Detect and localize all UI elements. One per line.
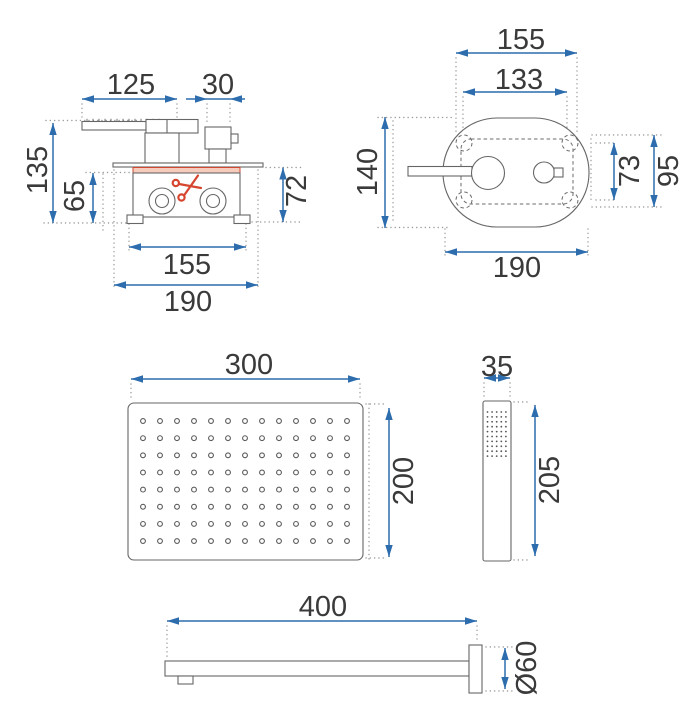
nozzle-hole bbox=[487, 431, 489, 433]
nozzle-hole bbox=[277, 470, 282, 475]
nozzle-hole bbox=[496, 411, 498, 413]
nozzle-hole bbox=[487, 436, 489, 438]
nozzle-hole bbox=[505, 431, 507, 433]
dim-label-190: 190 bbox=[164, 286, 212, 318]
nozzle-hole bbox=[328, 539, 333, 544]
nozzle-hole bbox=[209, 504, 214, 509]
nozzle-hole bbox=[243, 487, 248, 492]
nozzle-hole bbox=[226, 522, 231, 527]
nozzle-hole bbox=[311, 504, 316, 509]
nozzle-hole bbox=[500, 436, 502, 438]
nozzle-hole bbox=[226, 487, 231, 492]
nozzle-hole bbox=[496, 441, 498, 443]
nozzle-hole bbox=[345, 436, 350, 441]
nozzle-hole bbox=[294, 522, 299, 527]
nozzle-hole bbox=[226, 419, 231, 424]
nozzle-hole bbox=[175, 522, 180, 527]
nozzle-hole bbox=[500, 450, 502, 452]
nozzle-hole bbox=[158, 504, 163, 509]
temperature-knob bbox=[205, 127, 231, 149]
nozzle-hole bbox=[277, 504, 282, 509]
nozzle-hole bbox=[496, 436, 498, 438]
mixer-knob-small bbox=[534, 162, 555, 183]
nozzle-hole bbox=[328, 436, 333, 441]
nozzle-hole bbox=[243, 453, 248, 458]
nozzle-hole bbox=[209, 487, 214, 492]
nozzle-hole bbox=[500, 411, 502, 413]
nozzle-hole bbox=[192, 539, 197, 544]
nozzle-hole bbox=[496, 416, 498, 418]
nozzle-hole bbox=[491, 416, 493, 418]
nozzle-hole bbox=[491, 431, 493, 433]
nozzle-hole bbox=[505, 455, 507, 457]
nozzle-hole bbox=[496, 421, 498, 423]
nozzle-hole bbox=[294, 436, 299, 441]
nozzle-hole bbox=[496, 426, 498, 428]
nozzle-hole bbox=[294, 453, 299, 458]
nozzle-hole bbox=[345, 487, 350, 492]
dim-label-200: 200 bbox=[388, 457, 420, 505]
nozzle-hole bbox=[500, 445, 502, 447]
nozzle-hole bbox=[209, 539, 214, 544]
nozzle-hole bbox=[328, 522, 333, 527]
nozzle-hole bbox=[496, 445, 498, 447]
nozzle-hole bbox=[158, 539, 163, 544]
nozzle-hole bbox=[345, 504, 350, 509]
nozzle-hole bbox=[260, 453, 265, 458]
nozzle-hole bbox=[158, 487, 163, 492]
nozzle-hole bbox=[345, 522, 350, 527]
nozzle-hole bbox=[491, 411, 493, 413]
lever-handle-base bbox=[146, 120, 198, 134]
nozzle-hole bbox=[158, 419, 163, 424]
nozzle-hole bbox=[311, 487, 316, 492]
wall-plate bbox=[113, 163, 263, 167]
nozzle-hole bbox=[487, 426, 489, 428]
nozzle-hole bbox=[487, 441, 489, 443]
nozzle-hole bbox=[175, 436, 180, 441]
nozzle-hole bbox=[496, 431, 498, 433]
dim-label-133: 133 bbox=[495, 64, 543, 96]
nozzle-hole bbox=[487, 450, 489, 452]
hand-shower-view: 35 205 bbox=[481, 351, 566, 561]
nozzle-hole bbox=[491, 441, 493, 443]
nozzle-hole bbox=[505, 436, 507, 438]
nozzle-hole bbox=[141, 539, 146, 544]
nozzle-hole bbox=[277, 522, 282, 527]
nozzle-hole bbox=[260, 470, 265, 475]
nozzle-hole bbox=[175, 504, 180, 509]
nozzle-hole bbox=[328, 419, 333, 424]
dim-label-300: 300 bbox=[225, 349, 273, 381]
nozzle-hole bbox=[311, 539, 316, 544]
nozzle-hole bbox=[328, 487, 333, 492]
nozzle-hole bbox=[175, 470, 180, 475]
nozzle-hole bbox=[487, 416, 489, 418]
nozzle-hole bbox=[209, 522, 214, 527]
nozzle-hole bbox=[226, 436, 231, 441]
nozzle-hole bbox=[260, 504, 265, 509]
nozzle-hole bbox=[243, 419, 248, 424]
nozzle-hole bbox=[345, 453, 350, 458]
dim-label-125: 125 bbox=[107, 69, 155, 101]
nozzle-hole bbox=[277, 419, 282, 424]
nozzle-hole bbox=[487, 445, 489, 447]
arm-outlet-nub bbox=[178, 676, 193, 684]
nozzle-hole bbox=[294, 470, 299, 475]
nozzle-hole bbox=[158, 470, 163, 475]
nozzle-hole bbox=[260, 436, 265, 441]
nozzle-hole bbox=[294, 539, 299, 544]
shower-head-plate bbox=[128, 403, 363, 560]
nozzle-hole bbox=[311, 522, 316, 527]
nozzle-hole bbox=[277, 436, 282, 441]
hand-shower-body bbox=[483, 401, 511, 561]
nozzle-hole bbox=[328, 504, 333, 509]
nozzle-hole bbox=[209, 436, 214, 441]
nozzle-hole bbox=[226, 470, 231, 475]
shower-head-view: 300 200 bbox=[128, 349, 420, 560]
nozzle-hole bbox=[192, 487, 197, 492]
nozzle-hole bbox=[487, 455, 489, 457]
temperature-knob-nub bbox=[231, 134, 238, 143]
nozzle-hole bbox=[491, 426, 493, 428]
nozzle-hole bbox=[294, 504, 299, 509]
nozzle-hole bbox=[505, 411, 507, 413]
nozzle-hole bbox=[496, 450, 498, 452]
box-foot-left bbox=[127, 215, 143, 224]
dim-label-205: 205 bbox=[534, 456, 566, 504]
nozzle-hole bbox=[243, 539, 248, 544]
nozzle-hole bbox=[491, 436, 493, 438]
technical-drawing-canvas: 125 30 135 65 72 155 190 bbox=[0, 0, 700, 706]
nozzle-hole bbox=[277, 539, 282, 544]
lever-handle-side bbox=[408, 167, 472, 177]
nozzle-hole bbox=[491, 421, 493, 423]
nozzle-hole bbox=[226, 453, 231, 458]
nozzle-hole bbox=[487, 411, 489, 413]
shower-arm-view: 400 Ø60 bbox=[165, 591, 543, 695]
nozzle-hole bbox=[491, 450, 493, 452]
nozzle-hole bbox=[345, 470, 350, 475]
dim-label-140: 140 bbox=[352, 148, 384, 196]
nozzle-hole bbox=[243, 504, 248, 509]
nozzle-hole bbox=[141, 487, 146, 492]
nozzle-hole bbox=[141, 470, 146, 475]
nozzle-hole bbox=[192, 504, 197, 509]
nozzle-hole bbox=[192, 453, 197, 458]
nozzle-hole bbox=[294, 419, 299, 424]
extension-lines bbox=[167, 626, 513, 691]
dim-label-diameter: Ø60 bbox=[511, 641, 543, 696]
dim-label-400: 400 bbox=[299, 591, 347, 623]
dim-label-155: 155 bbox=[163, 249, 211, 281]
nozzle-hole bbox=[141, 436, 146, 441]
nozzle-hole bbox=[192, 419, 197, 424]
nozzle-hole bbox=[192, 522, 197, 527]
nozzle-hole bbox=[243, 436, 248, 441]
nozzle-hole bbox=[345, 539, 350, 544]
nozzle-hole bbox=[500, 441, 502, 443]
nozzle-hole bbox=[500, 421, 502, 423]
nozzle-hole bbox=[487, 421, 489, 423]
nozzle-hole bbox=[328, 453, 333, 458]
nozzle-hole bbox=[158, 453, 163, 458]
nozzle-hole bbox=[209, 470, 214, 475]
nozzle-hole bbox=[505, 421, 507, 423]
nozzle-hole bbox=[243, 470, 248, 475]
nozzle-hole bbox=[175, 539, 180, 544]
dim-label-95: 95 bbox=[653, 155, 685, 187]
nozzle-hole bbox=[500, 426, 502, 428]
nozzle-hole bbox=[328, 470, 333, 475]
arm-wall-flange bbox=[469, 645, 482, 693]
nozzle-hole bbox=[277, 453, 282, 458]
nozzle-hole bbox=[345, 419, 350, 424]
dim-label-30: 30 bbox=[202, 69, 234, 101]
nozzle-hole bbox=[209, 453, 214, 458]
nozzle-hole bbox=[491, 455, 493, 457]
nozzle-hole bbox=[260, 487, 265, 492]
knob-small-nub bbox=[554, 168, 563, 177]
lever-handle-bar bbox=[82, 122, 146, 131]
nozzle-hole bbox=[500, 416, 502, 418]
nozzle-hole bbox=[505, 445, 507, 447]
nozzle-hole bbox=[505, 426, 507, 428]
nozzle-hole bbox=[243, 522, 248, 527]
temperature-knob-stem bbox=[209, 149, 226, 163]
nozzle-hole bbox=[311, 453, 316, 458]
nozzle-hole bbox=[141, 522, 146, 527]
mixer-face-view: 155 133 140 73 95 190 bbox=[352, 24, 685, 284]
nozzle-hole bbox=[158, 436, 163, 441]
dim-label-73: 73 bbox=[614, 155, 646, 187]
nozzle-hole bbox=[505, 450, 507, 452]
nozzle-hole bbox=[175, 453, 180, 458]
dim-label-72: 72 bbox=[281, 175, 313, 207]
nozzle-hole bbox=[175, 487, 180, 492]
dim-label-65: 65 bbox=[59, 180, 91, 212]
nozzle-hole bbox=[226, 504, 231, 509]
nozzle-hole bbox=[500, 455, 502, 457]
technical-drawing-page: 125 30 135 65 72 155 190 bbox=[0, 0, 700, 706]
nozzle-hole bbox=[175, 419, 180, 424]
nozzle-hole bbox=[158, 522, 163, 527]
dim-label-155: 155 bbox=[497, 24, 545, 56]
mixer-front-view: 125 30 135 65 72 155 190 bbox=[22, 69, 313, 318]
mixer-knob-large bbox=[472, 157, 505, 190]
nozzle-hole bbox=[192, 436, 197, 441]
nozzle-hole bbox=[260, 522, 265, 527]
dim-label-190: 190 bbox=[493, 252, 541, 284]
arm-tube bbox=[165, 661, 469, 676]
nozzle-hole bbox=[141, 453, 146, 458]
nozzle-hole bbox=[311, 470, 316, 475]
nozzle-hole bbox=[294, 487, 299, 492]
nozzle-hole bbox=[192, 470, 197, 475]
mixer-cartridge-body bbox=[145, 133, 179, 163]
nozzle-hole bbox=[311, 436, 316, 441]
nozzle-hole bbox=[226, 539, 231, 544]
nozzle-hole bbox=[505, 441, 507, 443]
nozzle-hole bbox=[500, 431, 502, 433]
dim-label-35: 35 bbox=[481, 351, 513, 383]
nozzle-hole bbox=[491, 445, 493, 447]
box-foot-right bbox=[234, 215, 250, 224]
nozzle-hole bbox=[260, 419, 265, 424]
nozzle-hole bbox=[260, 539, 265, 544]
dim-label-135: 135 bbox=[22, 146, 54, 194]
nozzle-hole bbox=[209, 419, 214, 424]
nozzle-hole bbox=[141, 419, 146, 424]
nozzle-hole bbox=[141, 504, 146, 509]
nozzle-hole bbox=[505, 416, 507, 418]
nozzle-hole bbox=[311, 419, 316, 424]
cut-line-band bbox=[133, 168, 240, 174]
nozzle-hole bbox=[277, 487, 282, 492]
nozzle-hole bbox=[496, 455, 498, 457]
